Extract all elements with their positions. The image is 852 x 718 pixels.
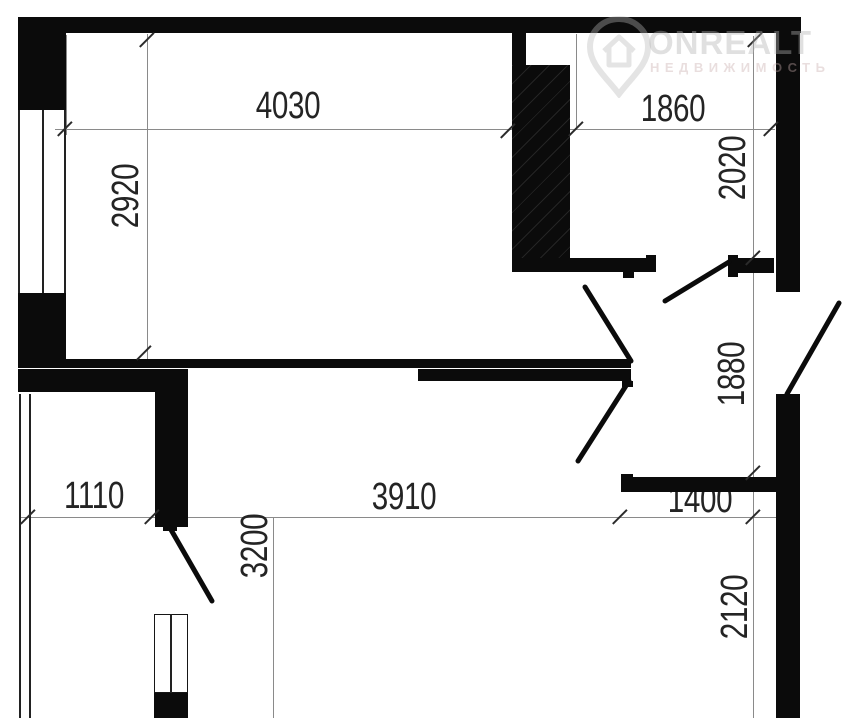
onrealt-pin-house-icon — [583, 14, 655, 98]
door-leaf-top-right-room — [665, 262, 729, 301]
door-leaf-hall-upper — [585, 287, 631, 361]
watermark-brand: ONREALT — [648, 24, 812, 62]
door-leaf-bottom-left-room — [170, 528, 212, 601]
door-leaf-entrance — [787, 303, 839, 394]
door-swing-lines — [0, 0, 852, 718]
floor-plan: 4030 1860 2920 2020 1880 1110 3910 1400 … — [0, 0, 852, 718]
door-leaf-hall-lower — [578, 381, 629, 461]
watermark-tagline: НЕДВИЖИМОСТЬ — [650, 60, 830, 75]
